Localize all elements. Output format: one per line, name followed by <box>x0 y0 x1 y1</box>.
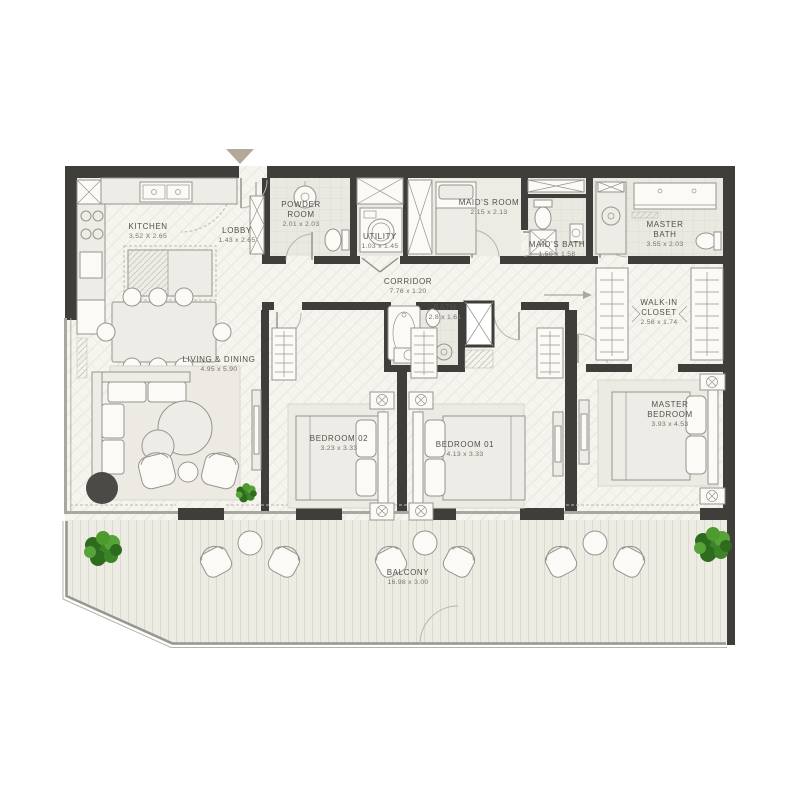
room-label-maids-room: MAID'S ROOM 2.15 x 2.13 <box>455 198 523 217</box>
pouf <box>86 472 118 504</box>
room-label-balcony: BALCONY 16.98 x 3.00 <box>368 568 448 587</box>
room-label-living-dining: LIVING & DINING 4.95 x 5.90 <box>166 355 272 374</box>
room-label-walk-in-closet: WALK-IN CLOSET 2.58 x 1.74 <box>626 298 692 327</box>
master-bedroom-furniture <box>579 374 725 504</box>
nightstand <box>409 503 433 520</box>
room-label-bedroom-02: BEDROOM 02 3.23 x 3.33 <box>300 434 378 453</box>
side-table <box>178 462 198 482</box>
room-label-lobby: LOBBY 1.43 x 2.65 <box>198 226 276 245</box>
room-label-bath: BATH 2.8 x 1.61 <box>422 303 468 322</box>
room-label-utility: UTILITY 1.03 x 1.45 <box>351 232 409 251</box>
living-room-furniture <box>86 366 261 504</box>
room-label-powder-room: POWDER ROOM 2.01 x 2.03 <box>271 200 331 229</box>
nightstand <box>409 392 433 409</box>
room-label-master-bedroom: MASTER BEDROOM 3.93 x 4.53 <box>630 400 710 429</box>
entry-arrow-icon <box>226 149 254 164</box>
room-label-corridor: CORRIDOR 7.76 x 1.20 <box>372 277 444 296</box>
nightstand <box>700 488 725 504</box>
room-label-maids-bath: MAID'S BATH 1.50 x 1.58 <box>528 240 586 259</box>
room-label-kitchen: KITCHEN 3.52 X 2.65 <box>100 222 196 241</box>
maids-room-furniture <box>436 182 476 254</box>
room-label-master-bath: MASTER BATH 3.55 x 2.03 <box>634 220 696 249</box>
floor-plan-canvas: KITCHEN 3.52 X 2.65 LOBBY 1.43 x 2.65 PO… <box>0 0 800 800</box>
room-label-bedroom-01: BEDROOM 01 4.13 x 3.33 <box>426 440 504 459</box>
nightstand <box>370 503 394 520</box>
nightstand <box>700 374 725 390</box>
nightstand <box>370 392 394 409</box>
hall-closet <box>408 180 432 254</box>
